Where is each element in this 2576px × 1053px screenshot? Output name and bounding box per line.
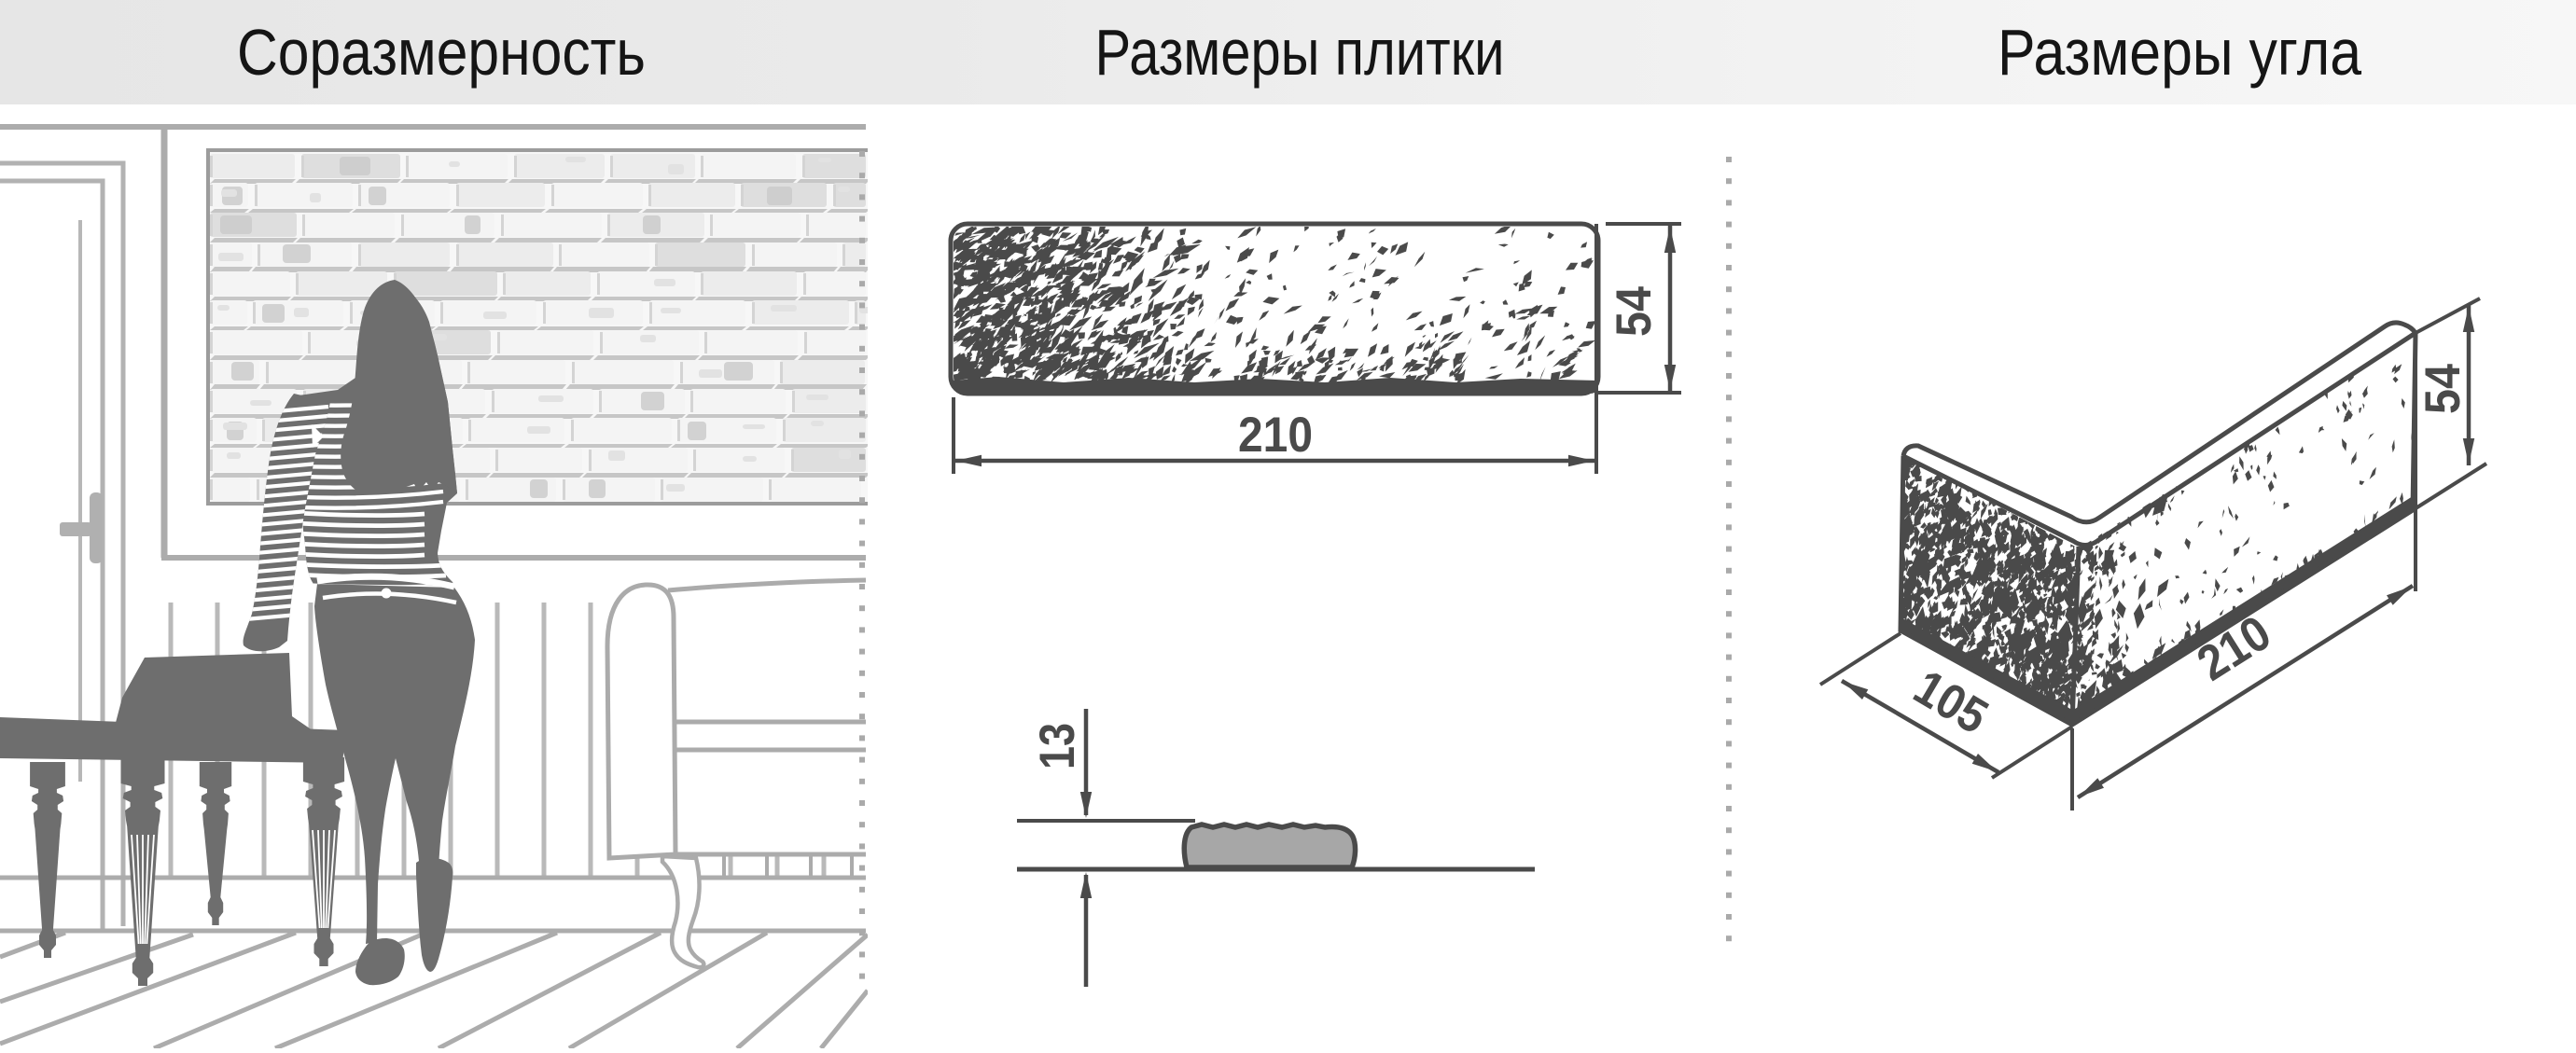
svg-text:54: 54 (2416, 364, 2471, 414)
svg-text:Размеры угла: Размеры угла (1998, 16, 2361, 89)
svg-text:13: 13 (1030, 723, 1085, 769)
svg-text:54: 54 (1607, 286, 1662, 337)
svg-text:210: 210 (1238, 408, 1313, 463)
svg-text:Размеры плитки: Размеры плитки (1095, 16, 1505, 89)
svg-text:Соразмерность: Соразмерность (237, 16, 646, 89)
